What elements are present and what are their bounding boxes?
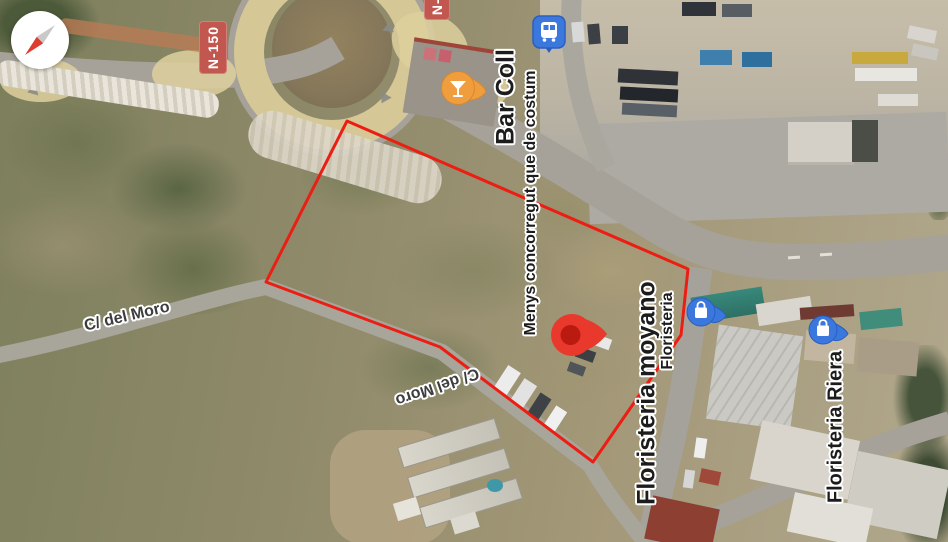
compass-needle-icon — [11, 11, 69, 69]
poi-label-floristeria[interactable]: Floristeria — [659, 292, 677, 369]
poi-label-bar-coll[interactable]: Bar Coll — [492, 49, 521, 145]
road-shield-n150-partial-inner: N-150 — [424, 0, 450, 20]
floristeria-shop-marker[interactable] — [686, 297, 728, 329]
selected-location-pin[interactable] — [548, 312, 612, 358]
transit-stop-marker[interactable] — [532, 15, 566, 55]
road-shield-n150-partial: N-150 — [424, 0, 450, 20]
satellite-map[interactable]: C/ del Moro C/ del Moro Bar Coll Menys c… — [0, 0, 948, 542]
parcel-outline — [266, 121, 688, 462]
compass-control[interactable] — [11, 11, 69, 69]
road-shield-n150: N-150 — [199, 21, 227, 74]
bar-drink-marker[interactable] — [440, 70, 488, 108]
poi-label-floristeria-riera[interactable]: Floristeria Riera — [825, 351, 848, 503]
poi-label-floristeria-moyano[interactable]: Floristeria moyano — [633, 281, 662, 505]
busyness-status-label: Menys concorregut que de costum — [522, 71, 540, 336]
road-shield-n150-partial-label: N-150 — [429, 0, 445, 15]
road-shield-n150-label: N-150 — [205, 26, 221, 69]
floristeria-riera-shop-marker[interactable] — [808, 315, 850, 347]
